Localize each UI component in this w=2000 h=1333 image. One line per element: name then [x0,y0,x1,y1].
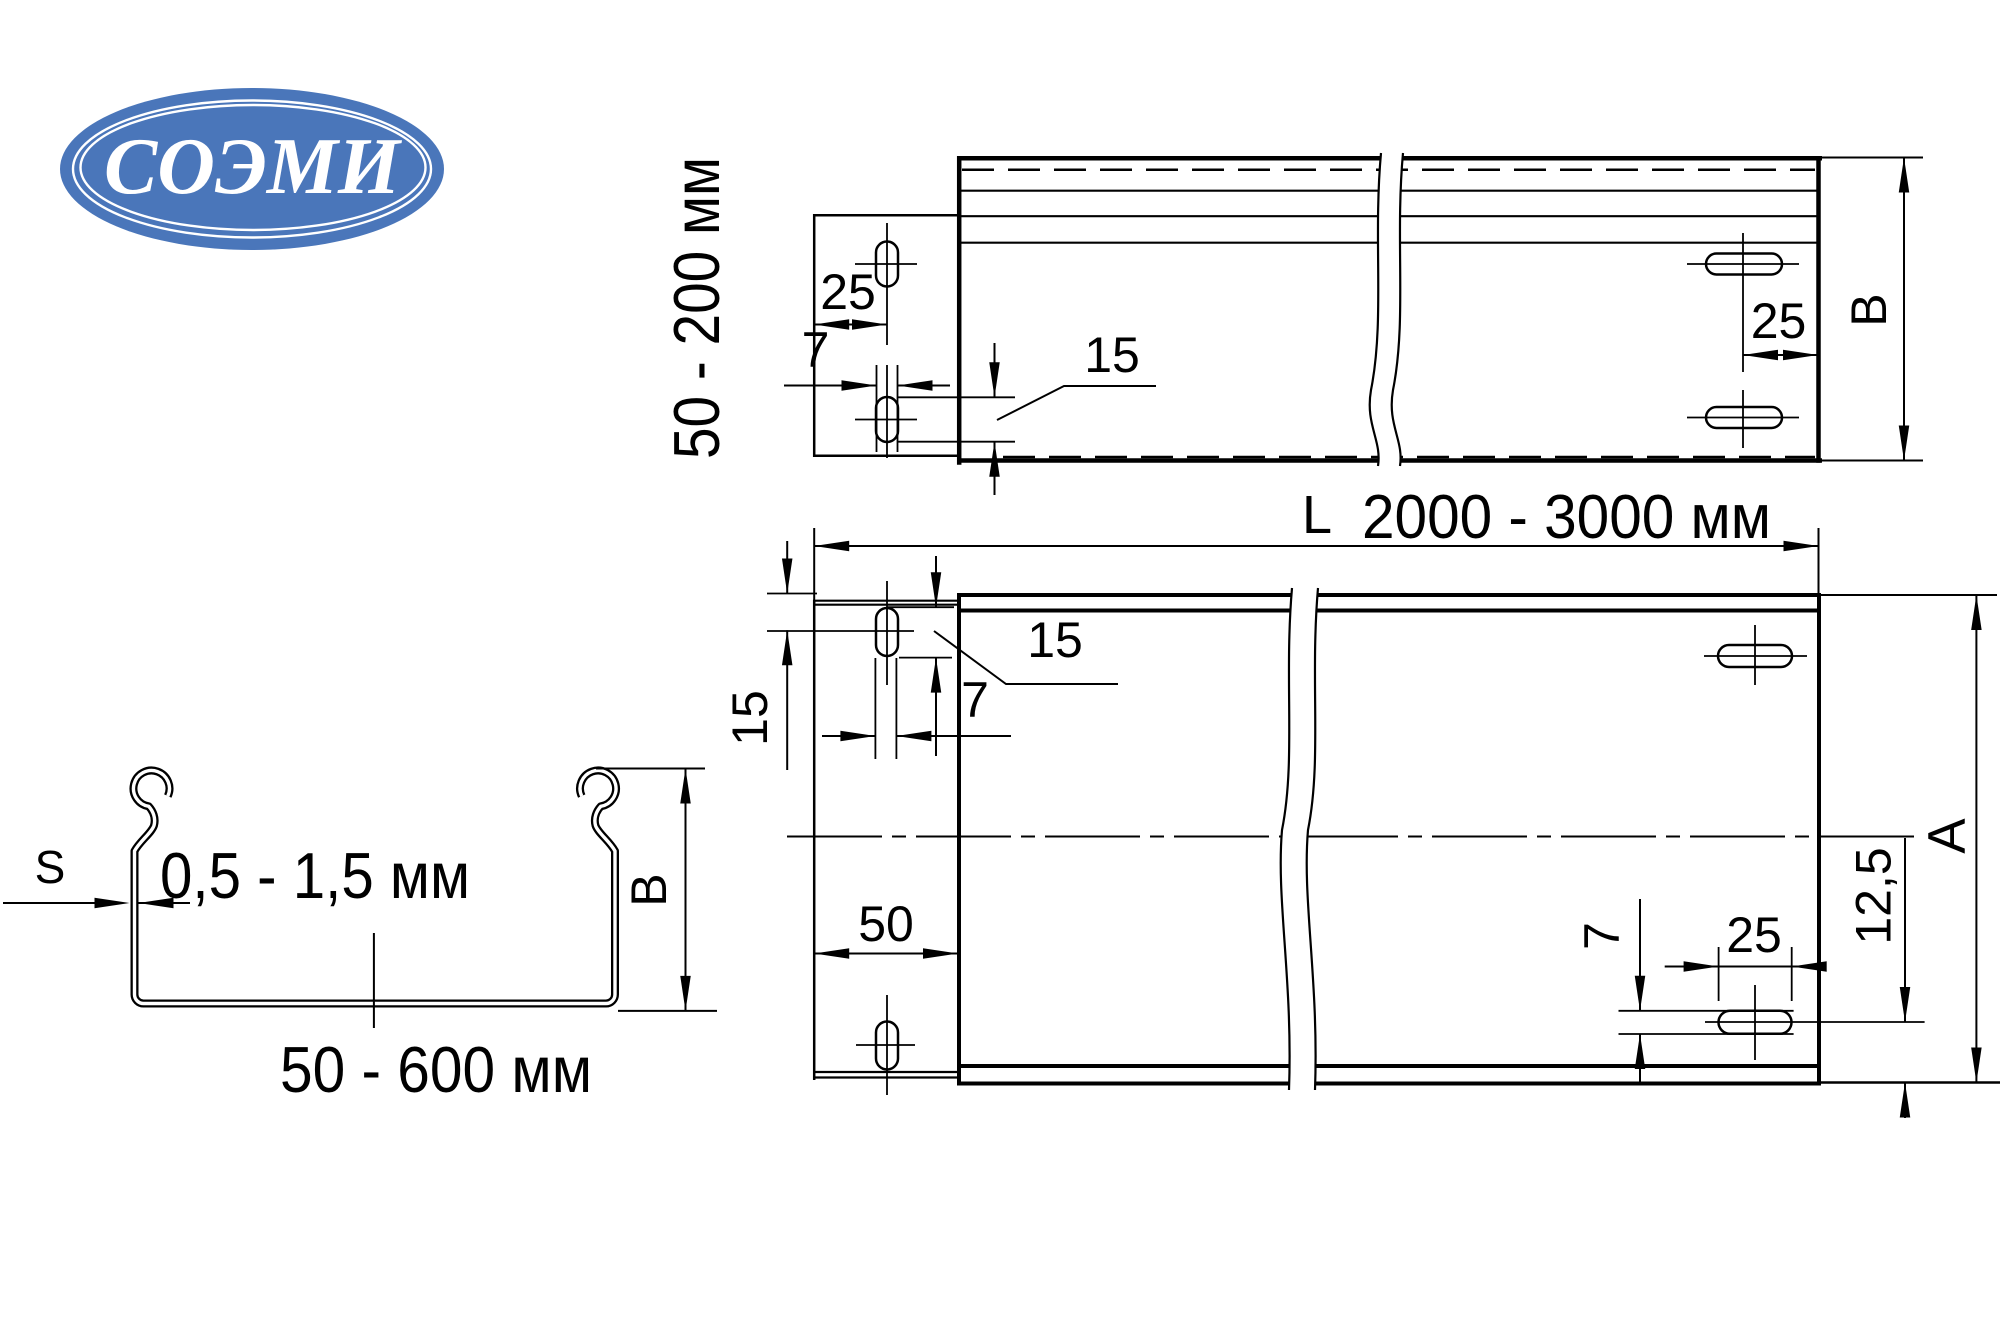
svg-text:B: B [621,873,677,906]
svg-text:7: 7 [802,322,830,378]
svg-text:S: S [35,841,66,893]
svg-text:12,5: 12,5 [1846,847,1902,944]
svg-text:15: 15 [1027,612,1083,668]
svg-text:B: B [1841,293,1897,326]
svg-text:2000 - 3000 мм: 2000 - 3000 мм [1362,483,1771,552]
svg-text:A: A [1918,818,1977,854]
svg-text:50: 50 [858,896,914,952]
svg-text:25: 25 [1751,293,1807,349]
svg-text:50 - 200 мм: 50 - 200 мм [660,157,733,459]
svg-text:25: 25 [1726,907,1782,963]
svg-text:L: L [1302,485,1332,545]
svg-text:7: 7 [961,672,989,728]
svg-text:0,5 - 1,5 мм: 0,5 - 1,5 мм [160,839,470,912]
svg-text:25: 25 [820,264,876,320]
svg-text:15: 15 [1084,327,1140,383]
svg-text:50 - 600 мм: 50 - 600 мм [280,1033,592,1106]
svg-text:СОЭМИ: СОЭМИ [104,123,403,211]
svg-text:7: 7 [1574,922,1630,950]
svg-text:15: 15 [722,690,778,746]
